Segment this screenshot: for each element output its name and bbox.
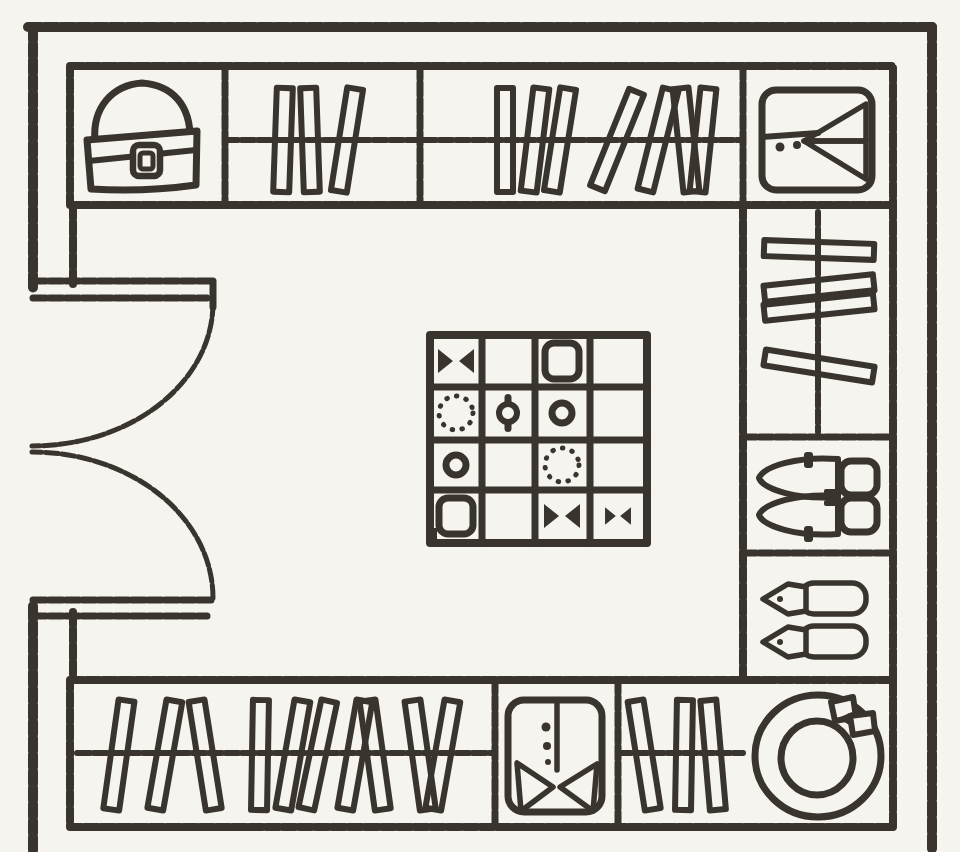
island-corner-mark	[428, 528, 437, 544]
floor-plan-canvas	[0, 0, 960, 852]
